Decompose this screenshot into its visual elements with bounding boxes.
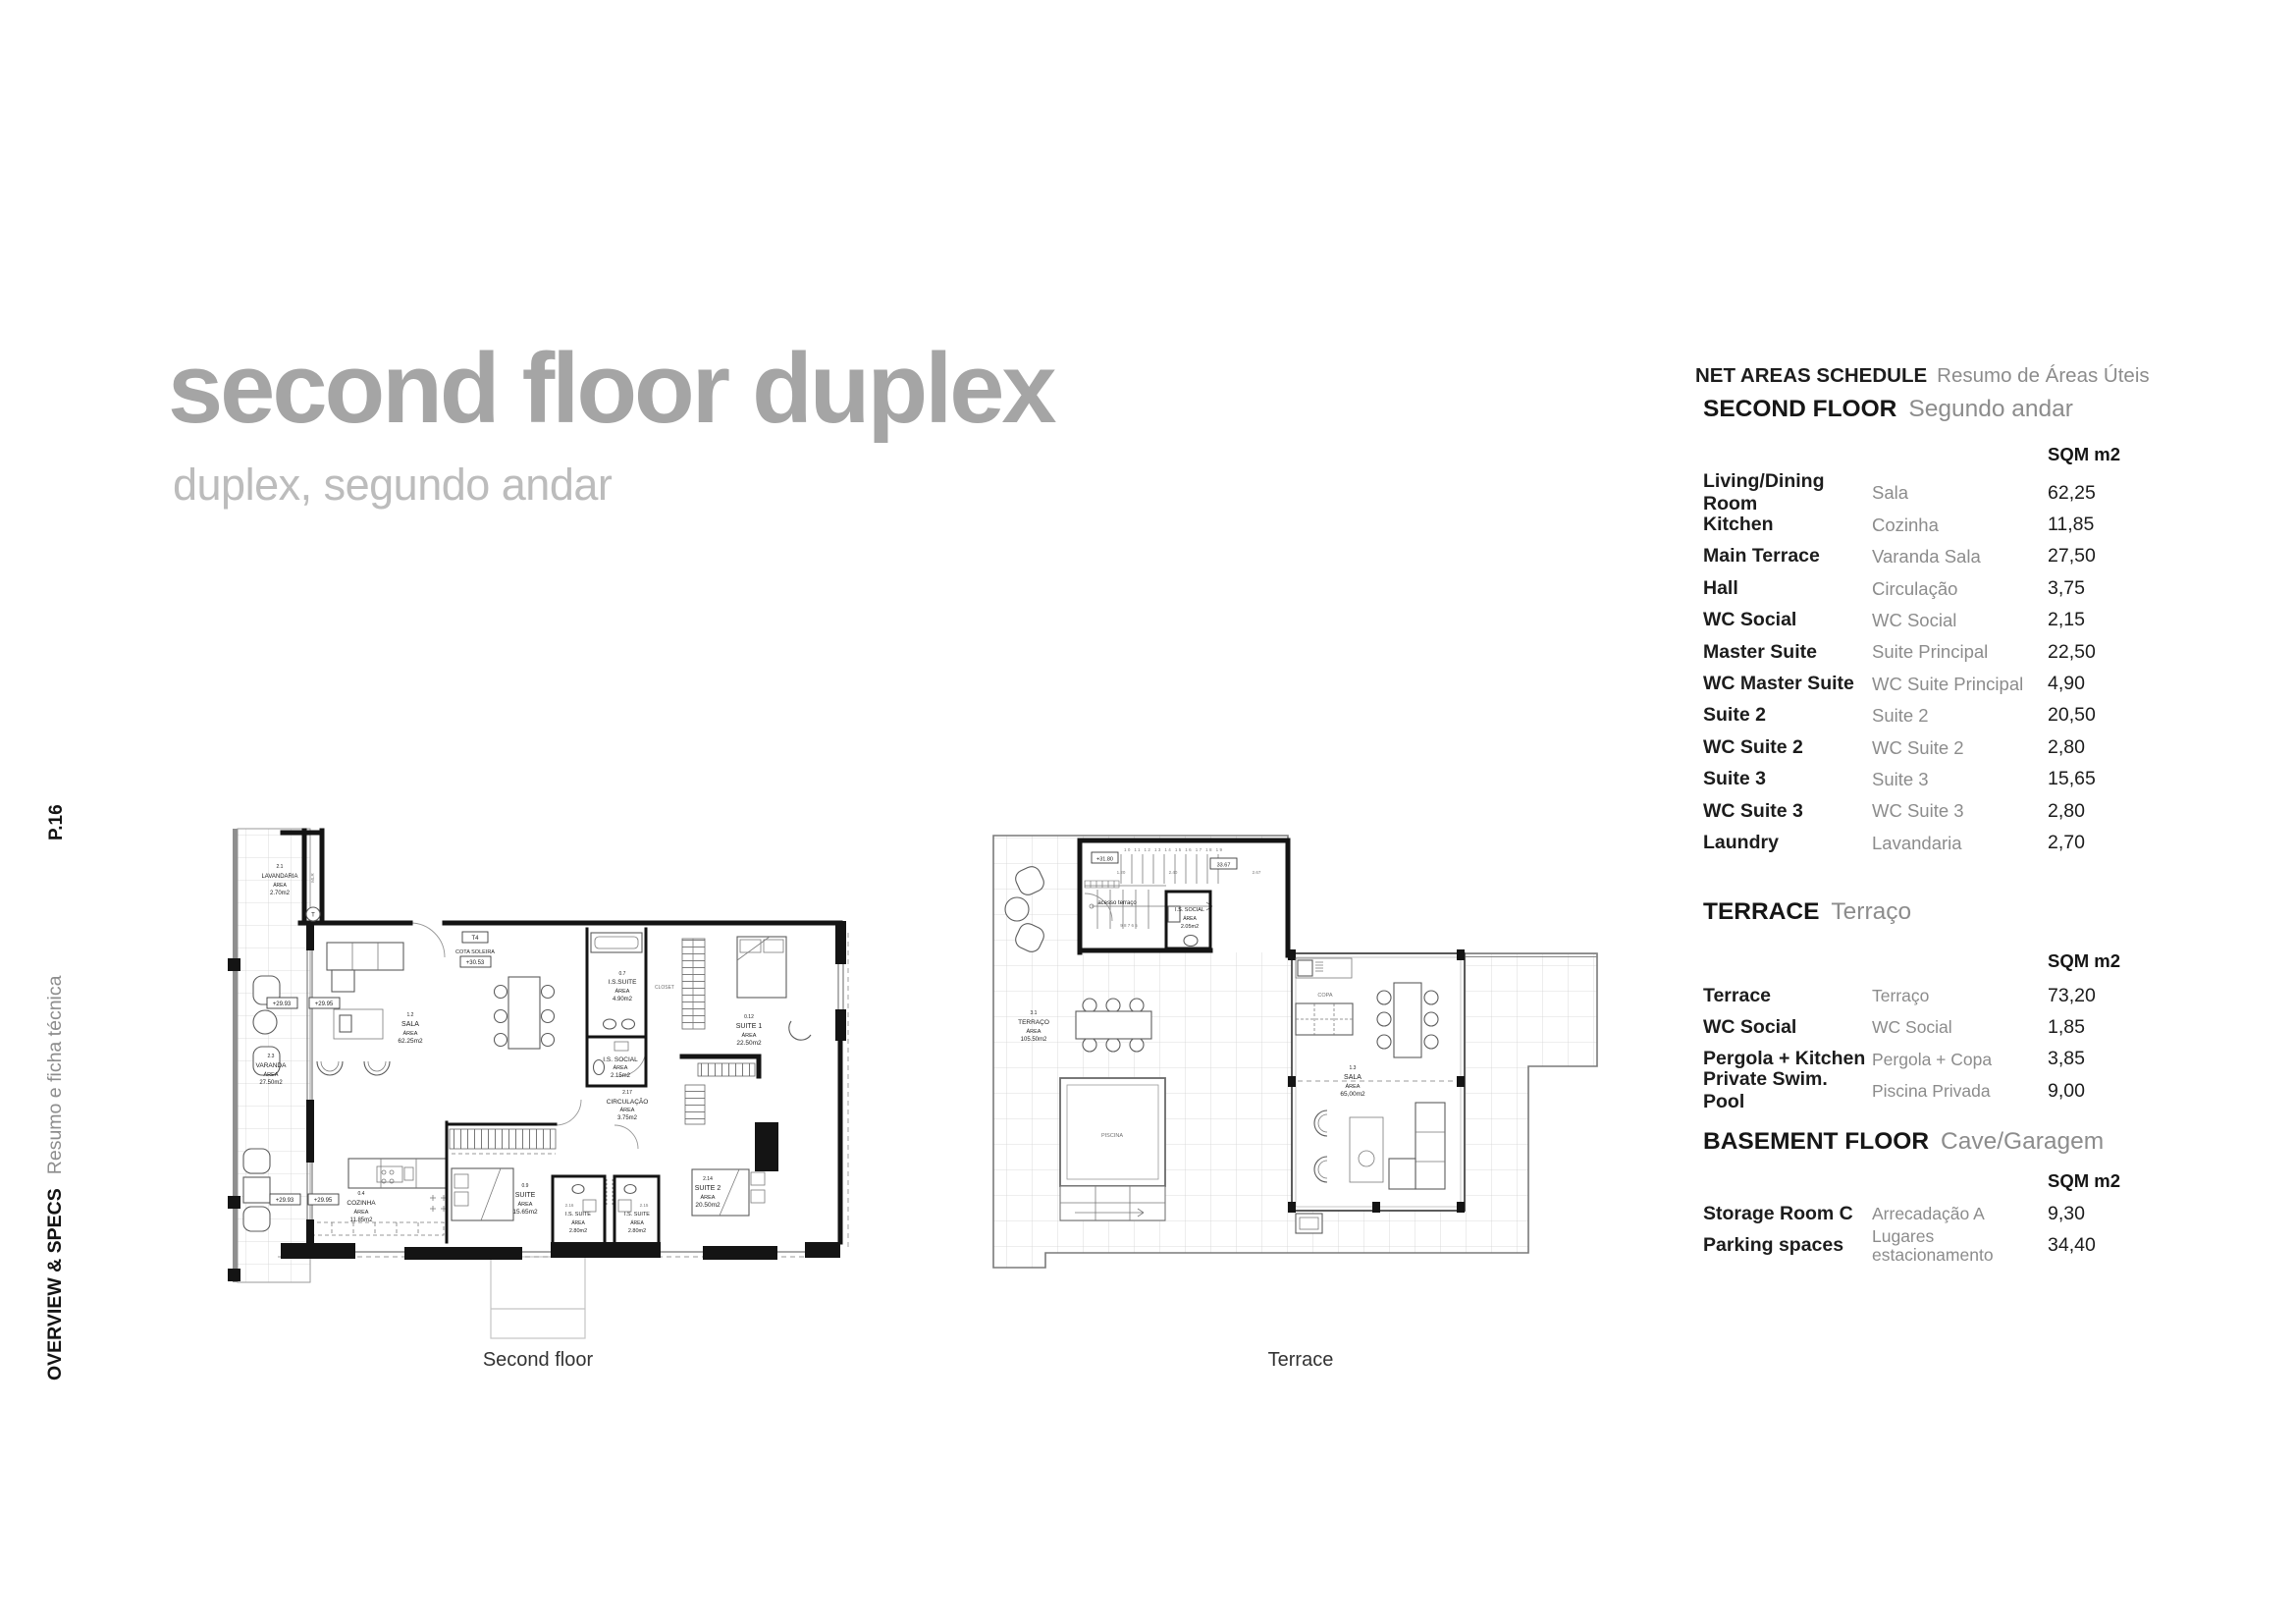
dim-label: 1.20 <box>1117 870 1126 875</box>
sidebar-section-pt: Resumo e ficha técnica <box>44 976 66 1175</box>
room-label: ÁREA <box>354 1209 369 1216</box>
row-sqm: 34,40 <box>2048 1234 2126 1257</box>
areas-table-second-floor: Living/Dining RoomSala62,25 KitchenCozin… <box>1703 477 2126 859</box>
row-sqm: 3,75 <box>2048 577 2126 600</box>
room-label: SUITE <box>515 1192 536 1199</box>
room-label: ÁREA <box>614 1064 628 1071</box>
room-label: 1.3 <box>1350 1065 1357 1071</box>
section-heading-pt: Terraço <box>1831 898 1911 925</box>
level-value: +29.93 <box>276 1198 294 1204</box>
row-pt: Terraço <box>1872 987 2048 1005</box>
row-sqm: 62,25 <box>2048 482 2126 505</box>
dim-label: 2.40 <box>1169 870 1178 875</box>
marker-t: T <box>311 913 315 919</box>
floor-plan-terrace: +31.80 33.67 1.20 2.40 2.67 acesso terra… <box>982 813 1620 1309</box>
row-pt: Suite Principal <box>1872 642 2048 662</box>
room-label: 0.9 <box>522 1183 529 1189</box>
sidebar-section-label: OVERVIEW & SPECSResumo e ficha técnica <box>44 976 67 1380</box>
areas-table-basement: Storage Room CArrecadação A9,30 Parking … <box>1703 1198 2126 1262</box>
row-sqm: 9,00 <box>2048 1080 2126 1103</box>
room-area: 65,00m2 <box>1340 1091 1365 1098</box>
row-en: Living/Dining Room <box>1703 470 1872 515</box>
row-sqm: 11,85 <box>2048 514 2126 536</box>
room-label: ÁREA <box>518 1201 533 1208</box>
level-value: +29.93 <box>273 1001 292 1007</box>
section-heading-en: SECOND FLOOR <box>1703 396 1896 422</box>
room-area: 20.50m2 <box>695 1202 721 1209</box>
row-pt: Lugares estacionamento <box>1872 1227 2048 1264</box>
room-area: 11.85m2 <box>350 1218 374 1223</box>
room-label: 0.4 <box>358 1191 365 1197</box>
schedule-header-en: NET AREAS SCHEDULE <box>1695 364 1927 387</box>
room-label: ÁREA <box>615 988 630 995</box>
room-label: 2.17 <box>622 1090 632 1096</box>
plan-caption-second-floor: Second floor <box>440 1349 636 1372</box>
row-sqm: 22,50 <box>2048 641 2126 664</box>
shaft-label: MLR <box>310 873 315 883</box>
row-sqm: 2,70 <box>2048 832 2126 854</box>
level-value: 33.67 <box>1217 863 1231 869</box>
row-pt: WC Suite 2 <box>1872 738 2048 758</box>
room-area: 4.90m2 <box>613 997 633 1002</box>
room-label: PISCINA <box>1101 1133 1123 1139</box>
row-en: Suite 3 <box>1703 768 1872 790</box>
room-label: ÁREA <box>1346 1083 1361 1090</box>
dim-label: 2.67 <box>1253 870 1261 875</box>
room-area: 27.50m2 <box>259 1080 283 1086</box>
row-pt: Suite 3 <box>1872 770 2048 789</box>
unit-label: SQM m2 <box>2048 950 2120 972</box>
room-label: ÁREA <box>403 1030 418 1037</box>
row-pt: Varanda Sala <box>1872 547 2048 567</box>
sidebar-section-en: OVERVIEW & SPECS <box>44 1188 66 1380</box>
row-sqm: 73,20 <box>2048 985 2126 1007</box>
row-sqm: 20,50 <box>2048 704 2126 727</box>
room-label: I.S. SOCIAL <box>1175 907 1204 913</box>
row-en: Hall <box>1703 577 1872 600</box>
room-label: acesso terraço <box>1097 900 1137 906</box>
room-label: SALA <box>401 1021 419 1028</box>
room-area: 22.50m2 <box>736 1040 762 1047</box>
level-value: +31.80 <box>1096 857 1113 863</box>
section-heading-en: BASEMENT FLOOR <box>1703 1128 1929 1155</box>
room-label: ÁREA <box>264 1071 279 1078</box>
row-pt: Circulação <box>1872 579 2048 599</box>
room-label: ÁREA <box>742 1032 757 1039</box>
room-label: 1.2 <box>407 1012 414 1018</box>
room-label: 0.12 <box>744 1014 754 1020</box>
row-en: WC Social <box>1703 609 1872 631</box>
room-label: SUITE 2 <box>695 1185 721 1192</box>
room-label: LAVANDARIA <box>261 874 297 880</box>
room-label: ÁREA <box>630 1219 644 1226</box>
schedule-header: NET AREAS SCHEDULEResumo de Áreas Úteis <box>1695 364 2150 388</box>
room-label: ÁREA <box>273 882 287 889</box>
cota-value: +30.53 <box>466 960 485 966</box>
row-en: Parking spaces <box>1703 1234 1872 1257</box>
room-label: SUITE 1 <box>736 1023 763 1030</box>
room-area: 105.50m2 <box>1021 1037 1047 1043</box>
row-sqm: 2,80 <box>2048 800 2126 823</box>
row-en: WC Suite 2 <box>1703 736 1872 759</box>
cota-label: COTA SOLEIRA <box>455 949 495 955</box>
room-label: CLOSET <box>655 985 674 991</box>
row-en: Laundry <box>1703 832 1872 854</box>
swimming-pool <box>1060 1078 1165 1220</box>
page-number: P.16 <box>46 804 68 840</box>
room-label: 2.3 <box>268 1054 275 1059</box>
level-value: +29.95 <box>315 1001 334 1007</box>
row-sqm: 9,30 <box>2048 1203 2126 1225</box>
row-en: Master Suite <box>1703 641 1872 664</box>
row-pt: WC Suite Principal <box>1872 675 2048 694</box>
row-sqm: 3,85 <box>2048 1048 2126 1070</box>
room-label: 0.7 <box>619 971 626 977</box>
section-heading-en: TERRACE <box>1703 898 1819 925</box>
room-label: 2.16 <box>565 1203 574 1208</box>
room-area: 62.25m2 <box>398 1038 423 1045</box>
row-pt: Suite 2 <box>1872 706 2048 726</box>
areas-table-terrace: TerraceTerraço73,20 WC SocialWC Social1,… <box>1703 980 2126 1108</box>
section-heading-pt: Segundo andar <box>1908 396 2073 422</box>
section-heading-pt: Cave/Garagem <box>1941 1128 2104 1155</box>
row-en: Kitchen <box>1703 514 1872 536</box>
room-label: ÁREA <box>571 1219 585 1226</box>
unit-label: SQM m2 <box>2048 444 2120 465</box>
room-label: 3.1 <box>1031 1010 1038 1016</box>
room-label: 2.70m2 <box>270 891 291 896</box>
row-en: Terrace <box>1703 985 1872 1007</box>
row-en: Pergola + Kitchen <box>1703 1048 1872 1070</box>
row-en: WC Social <box>1703 1016 1872 1039</box>
row-sqm: 15,65 <box>2048 768 2126 790</box>
typology-label: T4 <box>471 936 479 942</box>
row-pt: WC Social <box>1872 611 2048 630</box>
room-area: 2.80m2 <box>569 1228 587 1234</box>
page-subtitle: duplex, segundo andar <box>173 460 612 511</box>
stair-numbers: 9 8 7 6 5 <box>1120 923 1138 928</box>
room-area: 15.65m2 <box>512 1209 538 1216</box>
row-sqm: 4,90 <box>2048 673 2126 695</box>
row-pt: Arrecadação A <box>1872 1205 2048 1223</box>
room-label: ÁREA <box>620 1107 635 1113</box>
page-title: second floor duplex <box>168 340 1054 439</box>
room-label: I.S.SUITE <box>609 979 638 986</box>
row-en: WC Master Suite <box>1703 673 1872 695</box>
room-area: 3.75m2 <box>617 1115 638 1121</box>
room-label: ÁREA <box>1183 915 1197 922</box>
row-sqm: 2,80 <box>2048 736 2126 759</box>
row-pt: Pergola + Copa <box>1872 1051 2048 1069</box>
row-en: Suite 2 <box>1703 704 1872 727</box>
room-label: CIRCULAÇÃO <box>607 1097 649 1106</box>
row-en: Private Swim. Pool <box>1703 1068 1872 1113</box>
row-pt: Cozinha <box>1872 515 2048 535</box>
section-heading-terrace: TERRACETerraço <box>1703 898 1911 926</box>
row-sqm: 1,85 <box>2048 1016 2126 1039</box>
row-pt: WC Social <box>1872 1018 2048 1037</box>
floor-plan-second-floor: 2.1 LAVANDARIA ÁREA 2.70m2 MLR T T4 COTA… <box>224 813 867 1348</box>
room-label: ÁREA <box>701 1194 716 1201</box>
section-heading-second-floor: SECOND FLOORSegundo andar <box>1703 396 2073 423</box>
room-label: TERRAÇO <box>1018 1019 1049 1026</box>
room-label: I.S. SUITE <box>624 1212 650 1218</box>
brochure-page: P.16 OVERVIEW & SPECSResumo e ficha técn… <box>0 0 2296 1624</box>
room-area: 2.15m2 <box>611 1073 631 1079</box>
room-label: COZINHA <box>347 1200 376 1207</box>
stair-numbers: 10 11 12 13 14 15 16 17 18 19 <box>1124 847 1222 852</box>
room-area: 2.80m2 <box>628 1228 646 1234</box>
plan-caption-terrace: Terrace <box>1202 1349 1399 1372</box>
row-sqm: 27,50 <box>2048 545 2126 568</box>
row-en: Storage Room C <box>1703 1203 1872 1225</box>
room-label: SALA <box>1344 1074 1362 1081</box>
row-pt: Piscina Privada <box>1872 1082 2048 1101</box>
room-label: 2.15 <box>640 1203 649 1208</box>
level-value: +29.95 <box>314 1198 333 1204</box>
section-heading-basement: BASEMENT FLOORCave/Garagem <box>1703 1128 2104 1156</box>
unit-label: SQM m2 <box>2048 1170 2120 1192</box>
row-pt: Lavandaria <box>1872 834 2048 853</box>
row-en: Main Terrace <box>1703 545 1872 568</box>
room-label: VARANDA <box>256 1062 288 1069</box>
room-area: 2.05m2 <box>1181 924 1199 930</box>
row-en: WC Suite 3 <box>1703 800 1872 823</box>
row-sqm: 2,15 <box>2048 609 2126 631</box>
room-label: I.S. SUITE <box>565 1212 591 1218</box>
schedule-header-pt: Resumo de Áreas Úteis <box>1937 364 2149 387</box>
room-label: 2.14 <box>703 1176 713 1182</box>
row-pt: WC Suite 3 <box>1872 801 2048 821</box>
room-label: COPA <box>1317 993 1333 999</box>
row-pt: Sala <box>1872 483 2048 503</box>
room-label: ÁREA <box>1027 1028 1041 1035</box>
room-label: 2.1 <box>277 864 284 870</box>
room-label: I.S. SOCIAL <box>603 1056 638 1063</box>
